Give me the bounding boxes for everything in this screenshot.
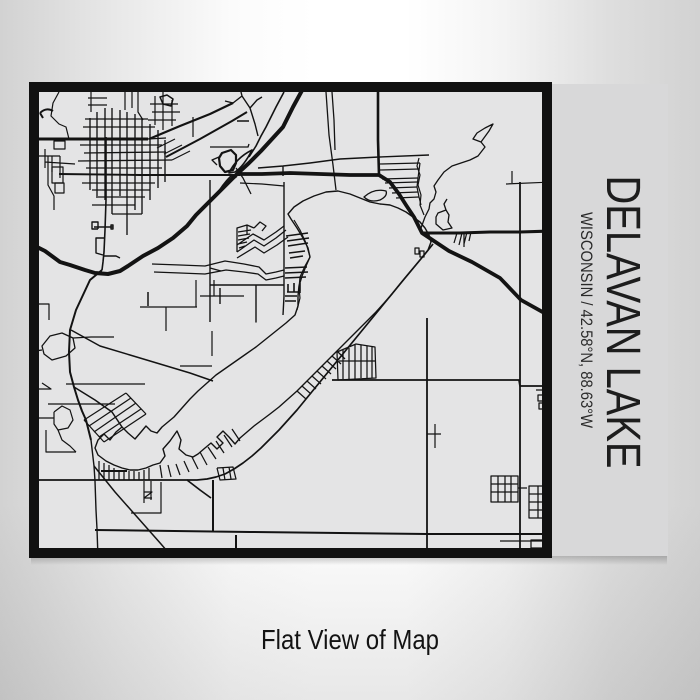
svg-text:WISCONSIN / 42.58°N, 88.63°W: WISCONSIN / 42.58°N, 88.63°W: [577, 212, 596, 428]
svg-text:Flat View of Map: Flat View of Map: [261, 624, 439, 655]
svg-text:DELAVAN LAKE: DELAVAN LAKE: [596, 176, 649, 469]
